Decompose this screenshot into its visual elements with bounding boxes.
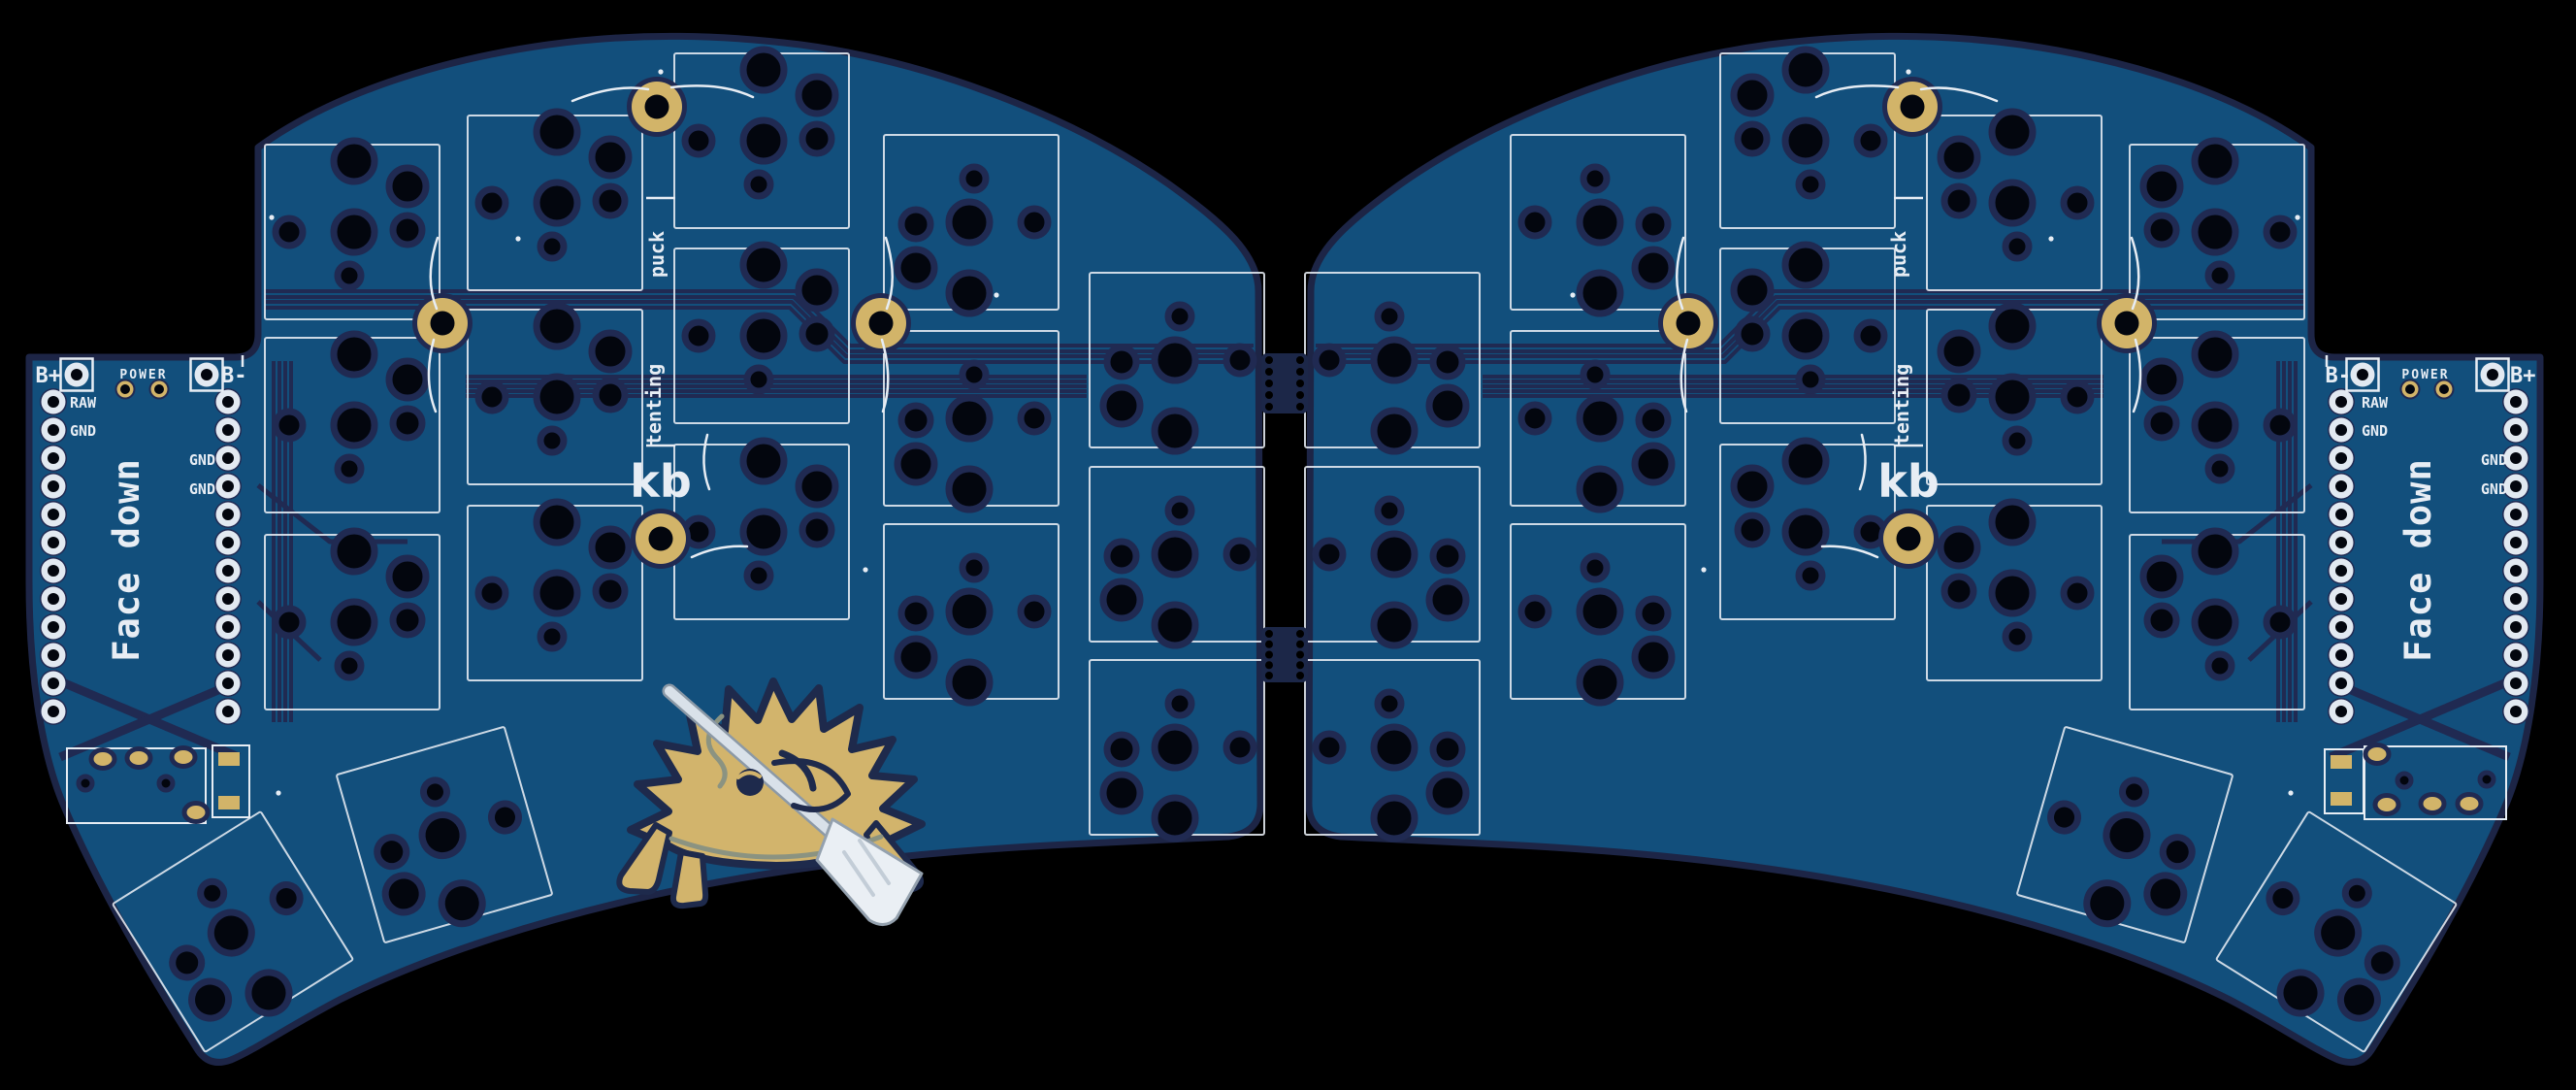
- silk-label-puck: puck: [1887, 231, 1910, 278]
- switch-hole: [1734, 77, 1771, 114]
- pin-hole: [2335, 565, 2347, 577]
- switch-hole: [1316, 541, 1343, 568]
- switch-hole: [1992, 377, 2033, 417]
- switch-hole: [962, 167, 986, 190]
- switch-hole: [747, 368, 770, 391]
- switch-hole: [802, 515, 831, 545]
- switch-hole: [1155, 605, 1195, 645]
- pin-hole: [222, 565, 234, 577]
- switch-hole: [1857, 127, 1884, 154]
- mascot-part: [673, 852, 705, 906]
- switch-hole: [2064, 579, 2091, 607]
- jack-pad: [2375, 796, 2398, 814]
- switch-hole: [1155, 534, 1195, 575]
- jack-pad: [91, 750, 114, 769]
- switch-hole: [537, 502, 577, 543]
- switch-hole: [1992, 182, 2033, 223]
- switch-hole: [1374, 534, 1415, 575]
- silk-label-b_minus: B-: [221, 364, 247, 388]
- switch-hole: [1168, 692, 1191, 715]
- switch-hole: [1155, 798, 1195, 839]
- mouse-bite-hole: [1265, 630, 1273, 638]
- switch-hole: [334, 141, 375, 182]
- switch-hole: [1738, 515, 1767, 545]
- mouse-bite-hole: [1265, 368, 1273, 376]
- switch-hole: [949, 469, 990, 510]
- switch-hole: [949, 398, 990, 439]
- switch-hole: [802, 124, 831, 153]
- switch-hole: [1433, 347, 1462, 377]
- switch-hole: [747, 173, 770, 196]
- power-hole: [154, 384, 164, 394]
- jack-pad: [172, 748, 195, 767]
- switch-hole: [596, 577, 625, 606]
- switch-hole: [2208, 264, 2232, 287]
- mounting-hole: [645, 95, 669, 119]
- switch-hole: [1378, 692, 1401, 715]
- silk-label-tenting: tenting: [642, 364, 666, 446]
- jack-hole: [159, 776, 173, 790]
- smd-pad: [218, 752, 240, 766]
- switch-hole: [1316, 734, 1343, 761]
- switch-hole: [949, 202, 990, 243]
- silk-label-face_down: Face down: [2397, 458, 2439, 661]
- switch-hole: [2005, 429, 2029, 452]
- switch-hole: [276, 218, 303, 246]
- switch-hole: [743, 50, 784, 90]
- switch-hole: [1107, 542, 1136, 571]
- switch-hole: [743, 245, 784, 285]
- pin-hole: [222, 706, 234, 717]
- switch-hole: [901, 210, 930, 239]
- switch-hole: [537, 377, 577, 417]
- switch-hole: [1226, 734, 1254, 761]
- switch-hole: [1639, 406, 1668, 435]
- switch-hole: [1374, 798, 1415, 839]
- switch-hole: [1785, 245, 1826, 285]
- switch-hole: [2143, 558, 2180, 595]
- silk-dot: [269, 215, 274, 219]
- power-hole: [120, 384, 130, 394]
- switch-hole: [540, 625, 564, 648]
- jack-pad: [2421, 795, 2444, 813]
- silk-dot: [1701, 567, 1706, 572]
- silk-label-raw: RAW: [70, 394, 97, 412]
- pin-hole: [48, 424, 59, 436]
- smd-pad: [2331, 755, 2352, 769]
- switch-hole: [338, 457, 361, 480]
- switch-hole: [2147, 215, 2176, 245]
- pin-hole: [222, 537, 234, 548]
- switch-hole: [1992, 112, 2033, 152]
- switch-hole: [1103, 775, 1140, 811]
- switch-hole: [374, 834, 409, 870]
- silk-label-b_plus: B+: [2510, 364, 2536, 388]
- switch-hole: [2143, 168, 2180, 205]
- silk-dot: [276, 790, 280, 795]
- power-hole: [2439, 384, 2449, 394]
- switch-hole: [1583, 556, 1607, 579]
- mouse-bite-hole: [1296, 403, 1304, 411]
- switch-hole: [1021, 405, 1048, 432]
- switch-hole: [1103, 387, 1140, 424]
- switch-hole: [2147, 409, 2176, 438]
- switch-hole: [897, 249, 934, 286]
- switch-hole: [1944, 380, 1973, 410]
- pin-hole: [48, 649, 59, 661]
- pin-hole: [2335, 706, 2347, 717]
- silk-label-tenting: tenting: [1890, 364, 1913, 446]
- jack-hole: [79, 776, 92, 790]
- mouse-bite-hole: [1265, 641, 1273, 648]
- pin-hole: [222, 424, 234, 436]
- switch-hole: [1799, 173, 1822, 196]
- switch-hole: [1226, 347, 1254, 374]
- mouse-bite-hole: [1296, 380, 1304, 387]
- jack-pad: [184, 804, 208, 822]
- switch-hole: [2195, 212, 2235, 252]
- switch-hole: [2147, 606, 2176, 635]
- mouse-bite-hole: [1265, 672, 1273, 679]
- silk-dot: [994, 292, 998, 297]
- switch-hole: [1374, 727, 1415, 768]
- switch-hole: [334, 602, 375, 643]
- switch-hole: [1155, 340, 1195, 380]
- switch-hole: [962, 556, 986, 579]
- switch-hole: [1785, 315, 1826, 356]
- switch-hole: [2143, 361, 2180, 398]
- switch-hole: [421, 777, 450, 807]
- switch-hole: [743, 315, 784, 356]
- smd-pad: [218, 796, 240, 809]
- switch-hole: [897, 639, 934, 676]
- switch-hole: [949, 662, 990, 703]
- switch-hole: [949, 591, 990, 632]
- switch-hole: [1378, 499, 1401, 522]
- switch-hole: [1429, 581, 1466, 618]
- mouse-bite-hole: [1265, 380, 1273, 387]
- switch-hole: [2266, 412, 2294, 439]
- switch-hole: [1785, 120, 1826, 161]
- switch-hole: [1944, 186, 1973, 215]
- mouse-bite-hole: [1296, 661, 1304, 669]
- pin-hole: [2510, 565, 2522, 577]
- switch-hole: [799, 77, 835, 114]
- pin-hole: [222, 509, 234, 520]
- pin-hole: [2335, 480, 2347, 492]
- switch-hole: [1857, 322, 1884, 349]
- silk-dot: [2295, 215, 2299, 219]
- switch-hole: [389, 558, 426, 595]
- pin-hole: [2335, 537, 2347, 548]
- switch-hole: [799, 468, 835, 505]
- switch-hole: [1374, 605, 1415, 645]
- pin-hole: [2510, 537, 2522, 548]
- silk-label-power: POWER: [119, 368, 167, 382]
- switch-hole: [334, 405, 375, 446]
- mounting-hole: [431, 312, 455, 336]
- switch-hole: [743, 441, 784, 481]
- switch-hole: [2208, 654, 2232, 677]
- switch-hole: [1639, 599, 1668, 628]
- silk-label-power: POWER: [2401, 368, 2449, 382]
- mouse-bite-hole: [1296, 641, 1304, 648]
- switch-hole: [596, 186, 625, 215]
- switch-hole: [1940, 529, 1977, 566]
- silk-label-logo: kb: [1877, 455, 1940, 508]
- switch-hole: [1940, 139, 1977, 176]
- pin-hole: [48, 565, 59, 577]
- switch-hole: [592, 529, 629, 566]
- pin-hole: [2510, 593, 2522, 605]
- jack-hole: [2480, 773, 2494, 786]
- jack-hole: [2397, 774, 2411, 787]
- switch-hole: [1940, 333, 1977, 370]
- switch-hole: [1226, 541, 1254, 568]
- battery-pad-hole: [2357, 369, 2368, 380]
- silk-label-puck: puck: [645, 231, 668, 278]
- switch-hole: [338, 264, 361, 287]
- pin-hole: [2335, 649, 2347, 661]
- mounting-hole: [869, 312, 894, 336]
- switch-hole: [1635, 249, 1672, 286]
- switch-hole: [1521, 209, 1549, 236]
- silk-label-b_minus: B-: [2326, 364, 2352, 388]
- silk-label-gnd: GND: [2481, 480, 2507, 498]
- pin-hole: [48, 452, 59, 464]
- switch-hole: [2195, 405, 2235, 446]
- switch-hole: [389, 168, 426, 205]
- switch-hole: [1433, 735, 1462, 764]
- pin-hole: [48, 593, 59, 605]
- pin-hole: [48, 480, 59, 492]
- switch-hole: [1785, 50, 1826, 90]
- switch-hole: [1734, 468, 1771, 505]
- pin-hole: [222, 621, 234, 633]
- switch-hole: [393, 606, 422, 635]
- mouse-bite-hole: [1265, 391, 1273, 399]
- switch-hole: [2266, 218, 2294, 246]
- switch-hole: [743, 512, 784, 552]
- switch-hole: [592, 139, 629, 176]
- silk-dot: [658, 69, 663, 74]
- pin-hole: [48, 537, 59, 548]
- switch-hole: [393, 409, 422, 438]
- switch-hole: [1521, 598, 1549, 625]
- silk-dot: [515, 236, 520, 241]
- pin-hole: [48, 396, 59, 408]
- power-hole: [2405, 384, 2415, 394]
- silk-label-raw: RAW: [2362, 394, 2389, 412]
- switch-hole: [537, 306, 577, 347]
- switch-hole: [1734, 272, 1771, 309]
- switch-hole: [685, 127, 712, 154]
- switch-hole: [1785, 512, 1826, 552]
- switch-hole: [1429, 387, 1466, 424]
- silk-label-gnd: GND: [189, 480, 215, 498]
- switch-hole: [1580, 662, 1620, 703]
- switch-hole: [334, 212, 375, 252]
- pcb-render: B+POWERB-RAWGNDGNDGNDFace downpucktentin…: [0, 0, 2576, 1090]
- switch-hole: [1992, 502, 2033, 543]
- pin-hole: [2335, 593, 2347, 605]
- switch-hole: [802, 319, 831, 348]
- jack-pad: [2365, 745, 2389, 764]
- pin-hole: [222, 396, 234, 408]
- pin-hole: [48, 677, 59, 689]
- switch-hole: [2195, 334, 2235, 375]
- switch-hole: [537, 182, 577, 223]
- silk-dot: [2288, 790, 2293, 795]
- pin-hole: [222, 677, 234, 689]
- pin-hole: [2510, 706, 2522, 717]
- silk-dot: [863, 567, 867, 572]
- silk-label-face_down: Face down: [106, 458, 147, 661]
- switch-hole: [1155, 727, 1195, 768]
- mouse-bite-hole: [1265, 356, 1273, 364]
- mouse-bite-hole: [1296, 651, 1304, 659]
- smd-pad: [2331, 792, 2352, 806]
- switch-hole: [2160, 834, 2196, 870]
- battery-pad-hole: [201, 369, 212, 380]
- switch-hole: [540, 429, 564, 452]
- switch-hole: [685, 322, 712, 349]
- switch-hole: [338, 654, 361, 677]
- switch-hole: [1168, 499, 1191, 522]
- silk-label-gnd: GND: [2481, 451, 2507, 469]
- switch-hole: [2208, 457, 2232, 480]
- mouse-bite-hole: [1296, 391, 1304, 399]
- switch-hole: [334, 334, 375, 375]
- switch-hole: [1521, 405, 1549, 432]
- switch-hole: [1433, 542, 1462, 571]
- switch-hole: [747, 564, 770, 587]
- switch-hole: [1635, 639, 1672, 676]
- switch-hole: [1799, 368, 1822, 391]
- silk-label-b_plus: B+: [36, 364, 62, 388]
- switch-hole: [1429, 775, 1466, 811]
- switch-hole: [1378, 305, 1401, 328]
- mounting-hole: [1897, 527, 1921, 551]
- silk-dot: [1906, 69, 1910, 74]
- switch-hole: [1580, 202, 1620, 243]
- battery-pad-hole: [2487, 369, 2498, 380]
- switch-hole: [276, 609, 303, 636]
- silk-label-gnd: GND: [70, 422, 96, 440]
- switch-hole: [1021, 209, 1048, 236]
- pin-hole: [2510, 509, 2522, 520]
- switch-hole: [901, 599, 930, 628]
- switch-hole: [1155, 411, 1195, 451]
- silk-label-logo: kb: [630, 455, 692, 508]
- switch-hole: [1580, 469, 1620, 510]
- switch-hole: [1580, 273, 1620, 314]
- switch-hole: [1103, 581, 1140, 618]
- mouse-bite-hole: [1296, 356, 1304, 364]
- switch-hole: [2195, 602, 2235, 643]
- mounting-hole: [2115, 312, 2139, 336]
- pin-hole: [2335, 452, 2347, 464]
- switch-hole: [478, 383, 505, 411]
- mouse-bite-hole: [1296, 630, 1304, 638]
- switch-hole: [1785, 441, 1826, 481]
- switch-hole: [1374, 411, 1415, 451]
- silk-label-gnd: GND: [2362, 422, 2388, 440]
- pin-hole: [222, 480, 234, 492]
- pin-hole: [222, 649, 234, 661]
- switch-hole: [592, 333, 629, 370]
- switch-hole: [488, 801, 522, 835]
- mouse-bite-hole: [1296, 672, 1304, 679]
- switch-hole: [276, 412, 303, 439]
- switch-hole: [962, 363, 986, 386]
- switch-hole: [1021, 598, 1048, 625]
- mouse-bite-hole: [1265, 651, 1273, 659]
- switch-hole: [1168, 305, 1191, 328]
- switch-hole: [901, 406, 930, 435]
- switch-hole: [389, 361, 426, 398]
- pin-hole: [2510, 396, 2522, 408]
- switch-hole: [1580, 591, 1620, 632]
- pin-hole: [2335, 396, 2347, 408]
- switch-hole: [1583, 167, 1607, 190]
- switch-hole: [2120, 777, 2149, 807]
- switch-hole: [537, 112, 577, 152]
- switch-hole: [478, 579, 505, 607]
- switch-hole: [1107, 347, 1136, 377]
- pin-hole: [2510, 621, 2522, 633]
- switch-hole: [2047, 801, 2081, 835]
- silk-dot: [1570, 292, 1575, 297]
- pin-hole: [2510, 424, 2522, 436]
- switch-hole: [1316, 347, 1343, 374]
- switch-hole: [1374, 340, 1415, 380]
- switch-hole: [2005, 235, 2029, 258]
- switch-hole: [1738, 319, 1767, 348]
- pin-hole: [48, 509, 59, 520]
- switch-hole: [334, 531, 375, 572]
- switch-hole: [2195, 531, 2235, 572]
- switch-hole: [2195, 141, 2235, 182]
- switch-hole: [478, 189, 505, 216]
- switch-hole: [596, 380, 625, 410]
- jack-pad: [127, 749, 150, 768]
- switch-hole: [1992, 306, 2033, 347]
- mounting-hole: [1677, 312, 1701, 336]
- switch-hole: [393, 215, 422, 245]
- switch-hole: [743, 120, 784, 161]
- switch-hole: [1583, 363, 1607, 386]
- silk-label-gnd: GND: [189, 451, 215, 469]
- pin-hole: [2335, 424, 2347, 436]
- mouse-bite-hole: [1265, 661, 1273, 669]
- switch-hole: [1944, 577, 1973, 606]
- switch-hole: [1992, 573, 2033, 613]
- switch-hole: [1639, 210, 1668, 239]
- pin-hole: [48, 706, 59, 717]
- switch-hole: [1799, 564, 1822, 587]
- pcb-panel: B+POWERB-RAWGNDGNDGNDFace downpucktentin…: [0, 0, 2576, 1090]
- switch-hole: [537, 573, 577, 613]
- pin-hole: [2510, 677, 2522, 689]
- pin-hole: [2510, 649, 2522, 661]
- switch-hole: [1580, 398, 1620, 439]
- switch-hole: [1107, 735, 1136, 764]
- mouse-bite-hole: [1265, 403, 1273, 411]
- mouse-bite-hole: [1296, 368, 1304, 376]
- switch-hole: [949, 273, 990, 314]
- switch-hole: [799, 272, 835, 309]
